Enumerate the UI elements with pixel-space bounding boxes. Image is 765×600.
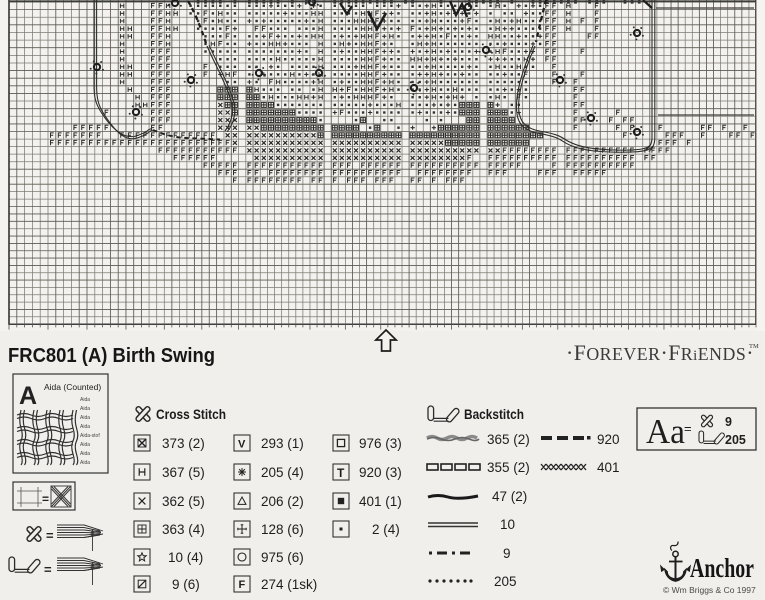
svg-text:920 (3): 920 (3) [359, 465, 402, 480]
svg-text:FRC801 (A) Birth Swing: FRC801 (A) Birth Swing [8, 345, 215, 367]
svg-text:Anchor: Anchor [690, 553, 754, 583]
svg-text:47 (2): 47 (2) [492, 489, 527, 504]
svg-text:Aida: Aida [80, 442, 90, 448]
svg-text:9: 9 [725, 415, 732, 429]
svg-text:205: 205 [494, 574, 517, 589]
svg-text:=: = [42, 492, 49, 506]
svg-text:Aida: Aida [80, 424, 90, 430]
svg-text:=: = [46, 528, 54, 543]
svg-text:355 (2): 355 (2) [487, 460, 530, 475]
svg-text:Aida: Aida [80, 415, 90, 421]
svg-text:976 (3): 976 (3) [359, 436, 402, 451]
svg-text:373 (2): 373 (2) [162, 436, 205, 451]
svg-text:274 (1sk): 274 (1sk) [261, 577, 317, 592]
svg-text:V: V [238, 439, 246, 451]
svg-text:© Wm Briggs & Co 1997: © Wm Briggs & Co 1997 [663, 585, 756, 595]
svg-text:A: A [19, 382, 37, 410]
svg-text:Backstitch: Backstitch [464, 406, 524, 422]
svg-text:10: 10 [500, 517, 515, 532]
svg-text:362 (5): 362 (5) [162, 494, 205, 509]
svg-text:TM: TM [749, 343, 759, 350]
svg-text:401 (1): 401 (1) [359, 494, 402, 509]
svg-text:Aida: Aida [80, 397, 90, 403]
svg-text:128 (6): 128 (6) [261, 522, 304, 537]
svg-text:9 (6): 9 (6) [172, 577, 200, 592]
svg-text:205: 205 [725, 433, 746, 447]
svg-text:Aa: Aa [646, 412, 685, 451]
svg-text:975 (6): 975 (6) [261, 550, 304, 565]
svg-text:205 (4): 205 (4) [261, 465, 304, 480]
svg-text:=: = [684, 421, 692, 436]
svg-text:206 (2): 206 (2) [261, 494, 304, 509]
svg-text:Aida: Aida [80, 451, 90, 457]
svg-text:F: F [239, 579, 246, 591]
svg-text:T: T [337, 466, 345, 480]
svg-text:Aida: Aida [80, 406, 90, 412]
svg-text:2 (4): 2 (4) [372, 522, 400, 537]
svg-text:Cross Stitch: Cross Stitch [156, 406, 226, 422]
svg-text:363 (4): 363 (4) [162, 522, 205, 537]
svg-text:Aida (Counted): Aida (Counted) [44, 382, 101, 392]
svg-text:401: 401 [597, 460, 620, 475]
svg-text:9: 9 [503, 546, 511, 561]
svg-text:920: 920 [597, 432, 620, 447]
svg-text:Aida-stof: Aida-stof [80, 433, 100, 439]
svg-text:367 (5): 367 (5) [162, 465, 205, 480]
svg-text:·FOREVER·FRiENDS·: ·FOREVER·FRiENDS· [566, 340, 754, 365]
svg-text:365 (2): 365 (2) [487, 432, 530, 447]
svg-text:10 (4): 10 (4) [168, 550, 203, 565]
svg-text:293 (1): 293 (1) [261, 436, 304, 451]
svg-text:=: = [44, 562, 52, 577]
svg-text:Aida: Aida [80, 460, 90, 466]
